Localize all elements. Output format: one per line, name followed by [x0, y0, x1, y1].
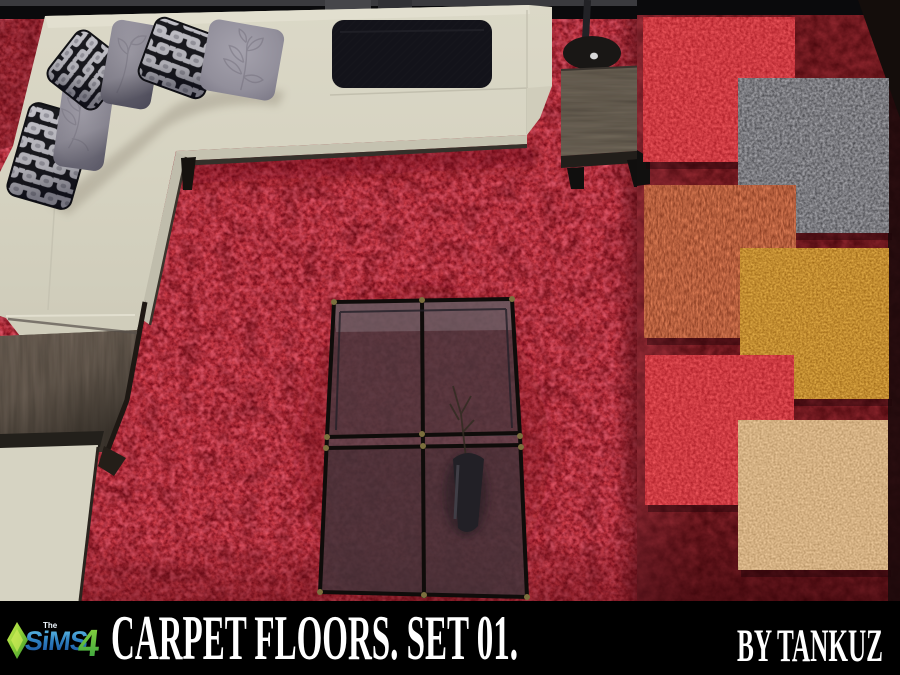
svg-text:4: 4 — [76, 623, 102, 665]
svg-text:BY TANKUZ: BY TANKUZ — [737, 620, 883, 672]
svg-text:CARPET FLOORS. SET 01.: CARPET FLOORS. SET 01. — [111, 602, 518, 673]
